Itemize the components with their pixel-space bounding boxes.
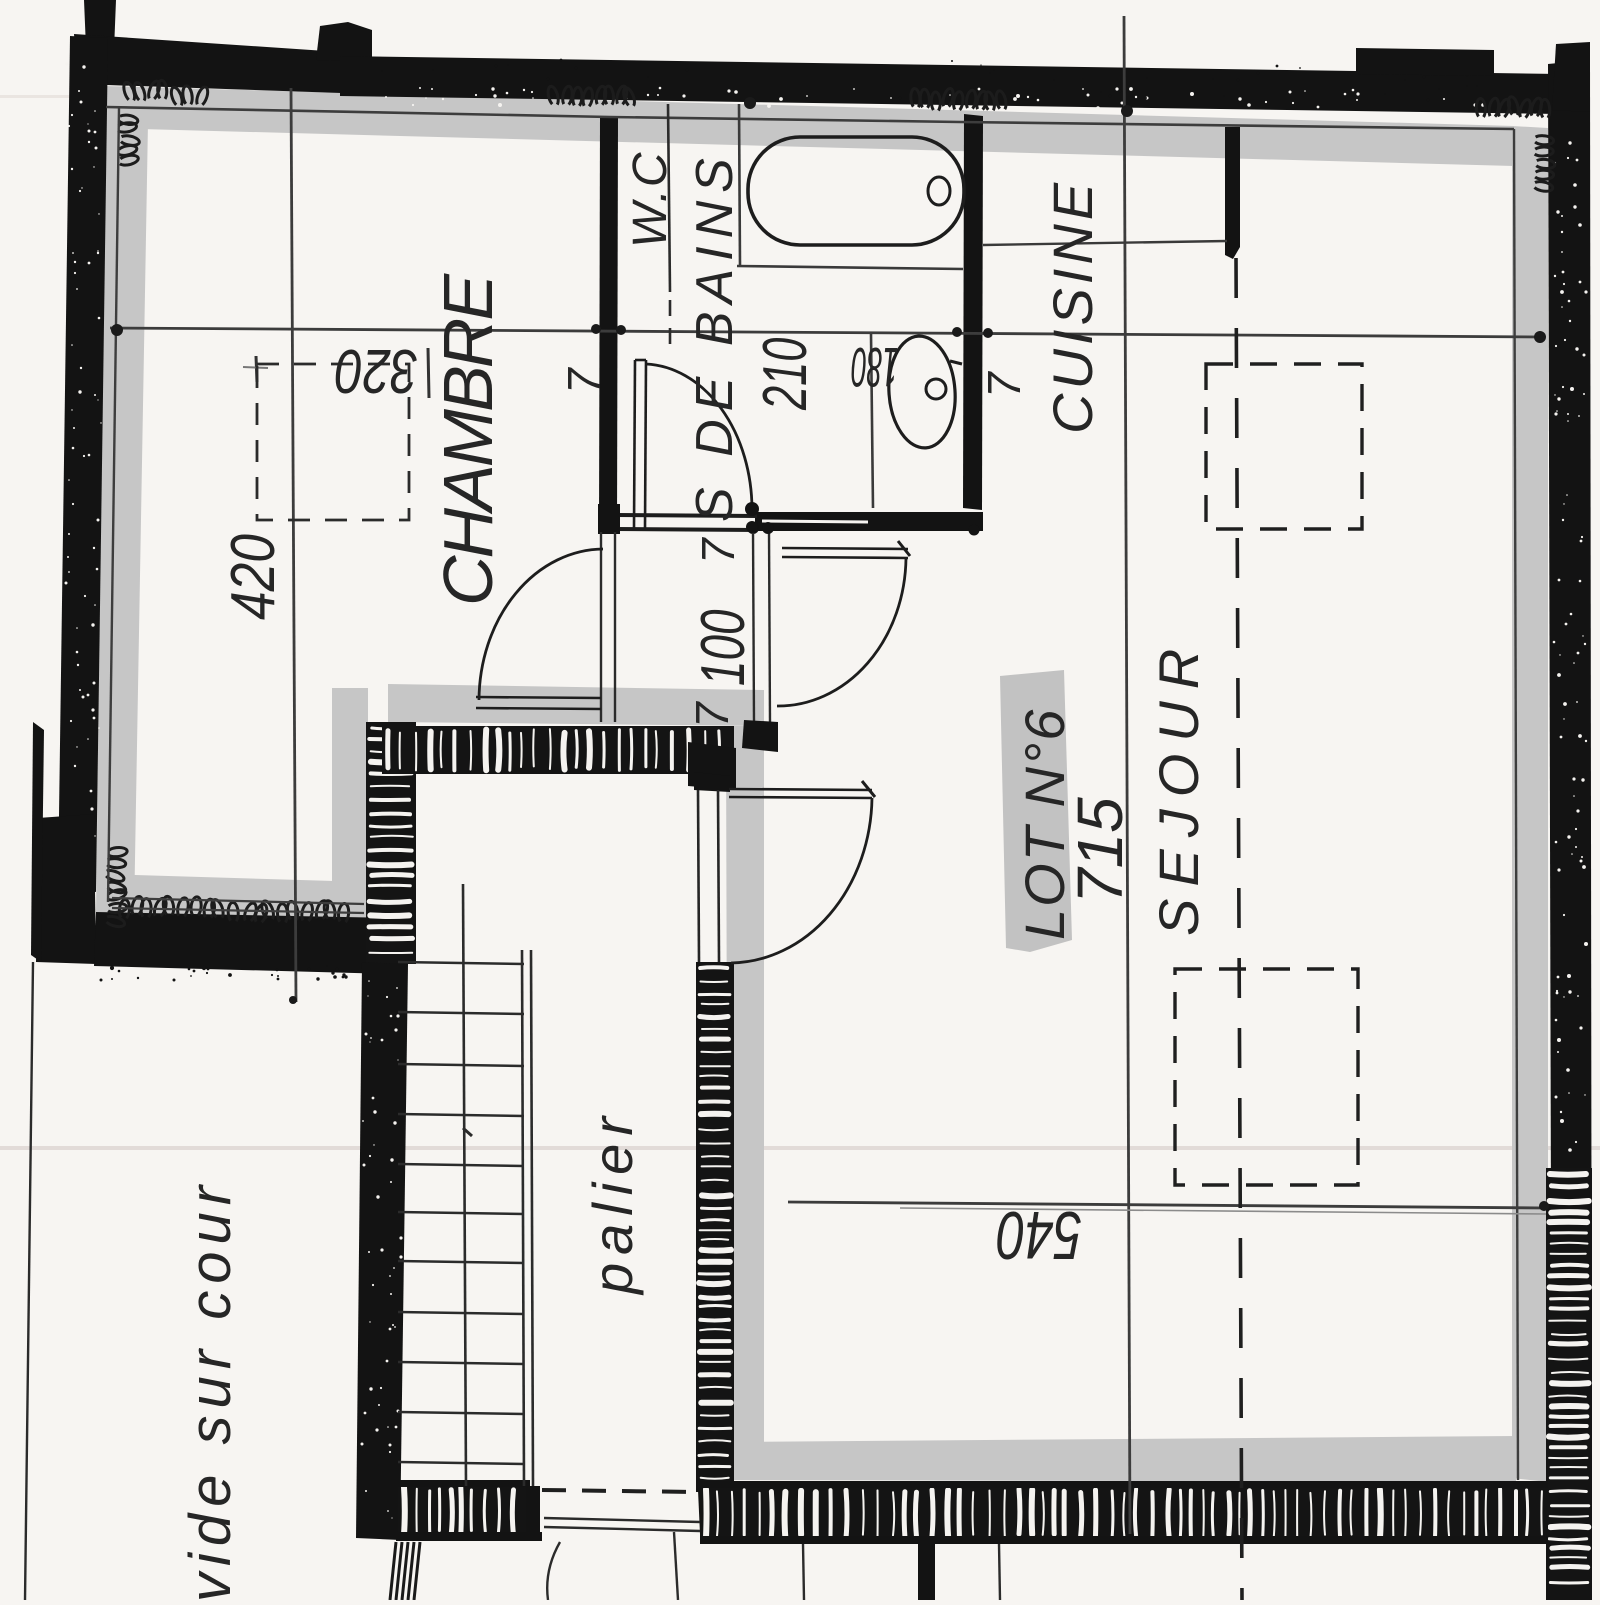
svg-text:420: 420: [219, 534, 289, 620]
svg-text:SEJOUR: SEJOUR: [1147, 637, 1210, 936]
svg-text:CUISINE: CUISINE: [1041, 179, 1104, 434]
svg-text:7: 7: [686, 701, 738, 728]
svg-text:100: 100: [688, 609, 757, 686]
svg-text:vide sur cour: vide sur cour: [178, 1179, 243, 1600]
svg-text:CHAMBRE: CHAMBRE: [429, 273, 507, 606]
svg-text:S DE BAINS: S DE BAINS: [686, 150, 744, 522]
svg-text:320: 320: [335, 337, 418, 407]
svg-text:715: 715: [1064, 797, 1136, 904]
svg-text:7: 7: [558, 367, 610, 394]
svg-text:210: 210: [752, 337, 820, 410]
svg-text:540: 540: [997, 1197, 1082, 1273]
svg-text:palier: palier: [581, 1109, 644, 1296]
svg-text:7: 7: [978, 371, 1030, 398]
svg-text:180: 180: [851, 335, 898, 397]
svg-text:7: 7: [692, 537, 744, 564]
svg-text:W.C: W.C: [624, 150, 677, 248]
